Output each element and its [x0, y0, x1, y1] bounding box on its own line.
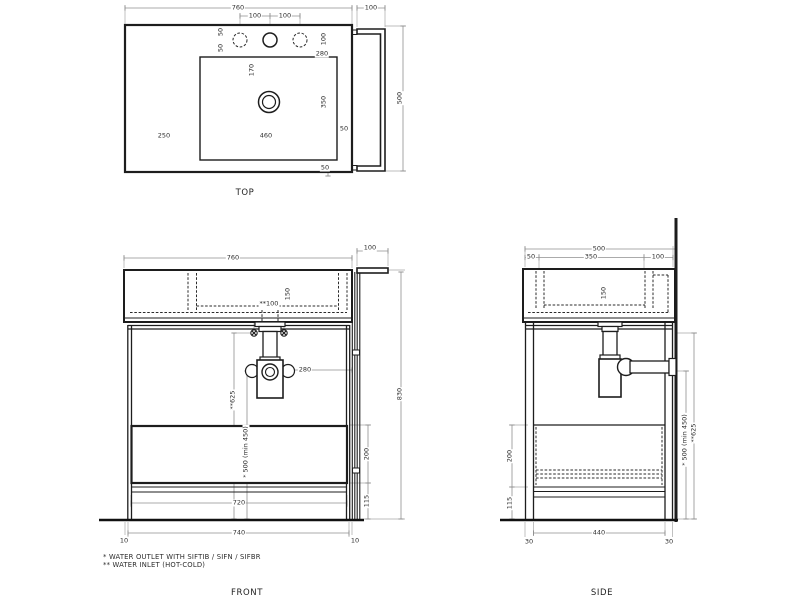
- top-dim-depth-500: 500: [397, 91, 404, 105]
- side-dim-bowl-depth: 150: [601, 286, 608, 300]
- side-dim-base-115: 115: [507, 496, 514, 510]
- side-dim-right-30: 30: [664, 539, 674, 546]
- top-view-drawing: [125, 5, 406, 176]
- front-dim-rail-width: 100: [363, 245, 377, 252]
- front-dim-base-115: 115: [364, 494, 371, 508]
- top-dim-hole-left: 100: [248, 13, 262, 20]
- top-dim-back-offset: 50: [218, 27, 225, 37]
- front-dim-left-10: 10: [119, 538, 129, 545]
- front-dim-trap-280: 280: [298, 367, 312, 374]
- top-dim-corner-100: 100: [321, 32, 328, 46]
- footnote-water-outlet: * WATER OUTLET WITH SIFTIB / SIFN / SIFB…: [103, 553, 261, 561]
- side-view-title: SIDE: [591, 588, 613, 598]
- front-dim-outlet-height: * 500 (min 450): [243, 425, 250, 479]
- front-dim-width: 760: [226, 255, 240, 262]
- top-dim-right-50: 50: [339, 126, 349, 133]
- front-view-title: FRONT: [231, 588, 263, 598]
- top-dim-rail-width: 100: [364, 5, 378, 12]
- top-dim-bowl-offset: 50: [218, 43, 225, 53]
- top-dim-faucet-280: 280: [315, 51, 329, 58]
- top-dim-left-250: 250: [157, 133, 171, 140]
- side-dim-inlet-height: **625: [691, 423, 698, 444]
- top-dim-bowl-350: 350: [321, 95, 328, 109]
- technical-drawing-sheet: 760 100 100 100 50 50 100 280 170 350 25…: [0, 0, 800, 600]
- side-dim-back-100: 100: [651, 254, 665, 261]
- side-dim-outlet-height: * 500 (min 450): [682, 413, 689, 467]
- side-dim-front-50: 50: [526, 254, 536, 261]
- side-dim-depth-500: 500: [592, 246, 606, 253]
- top-dim-width: 760: [231, 5, 245, 12]
- front-dim-inlet-pitch: **100: [259, 301, 280, 308]
- top-dim-bottom-50: 50: [320, 165, 330, 172]
- front-dim-inner-720: 720: [232, 500, 246, 507]
- top-view-title: TOP: [236, 188, 255, 198]
- side-dim-left-30: 30: [524, 539, 534, 546]
- front-dim-bowl-depth: 150: [285, 287, 292, 301]
- front-dim-frame-740: 740: [232, 530, 246, 537]
- top-dim-drain-170: 170: [249, 63, 256, 77]
- top-dim-bowl-460: 460: [259, 133, 273, 140]
- front-dim-inlet-height: **625: [230, 390, 237, 411]
- front-dim-height-830: 830: [397, 387, 404, 401]
- top-dim-hole-right: 100: [278, 13, 292, 20]
- front-view-drawing: [99, 248, 405, 537]
- front-dim-right-10: 10: [350, 538, 360, 545]
- side-dim-bowl-350: 350: [584, 254, 598, 261]
- front-dim-drawer-200: 200: [364, 447, 371, 461]
- side-dim-inner-440: 440: [592, 530, 606, 537]
- side-dim-drawer-200: 200: [507, 449, 514, 463]
- footnote-water-inlet: ** WATER INLET (HOT-COLD): [103, 561, 205, 569]
- side-view-drawing: [500, 218, 697, 537]
